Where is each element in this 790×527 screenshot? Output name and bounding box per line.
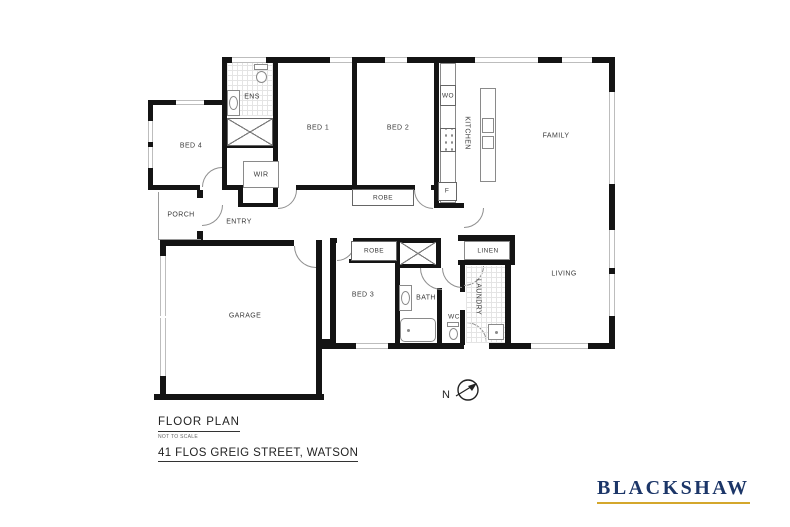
room-label-family: FAMILY — [543, 133, 570, 140]
wall-segment — [148, 100, 153, 190]
window-segment — [356, 343, 388, 349]
wall-segment — [222, 57, 615, 63]
blackshaw-logo: BLACKSHAW — [597, 477, 750, 504]
cooktop — [440, 128, 456, 152]
floor-plan-page: ENS BED 4 BED 1 BED 2 WO KITCHEN FAMILY … — [0, 0, 790, 527]
room-label-robe-bed12: ROBE — [373, 195, 393, 202]
appliance-label-fridge: F — [445, 188, 449, 195]
wall-segment — [162, 240, 294, 246]
room-label-bath: BATH — [416, 295, 436, 302]
window-segment — [148, 147, 153, 168]
robe-cupboard-crossed — [227, 118, 273, 146]
kitchen-island — [480, 88, 496, 182]
window-segment — [562, 57, 592, 63]
wall-segment — [148, 185, 200, 190]
plan-title: FLOOR PLAN — [158, 416, 240, 432]
room-label-wir: WIR — [254, 172, 269, 179]
wall-segment — [460, 310, 465, 345]
wall-segment — [352, 57, 357, 185]
title-block: FLOOR PLAN NOT TO SCALE 41 FLOS GREIG ST… — [158, 412, 358, 462]
door-arc-bed1 — [278, 190, 297, 209]
room-label-bed4: BED 4 — [180, 143, 202, 150]
compass: N — [440, 374, 486, 406]
wall-segment — [296, 185, 356, 190]
door-opening — [464, 343, 489, 349]
room-label-living: LIVING — [551, 271, 576, 278]
hall-cupboard-crossed — [400, 242, 436, 265]
wall-segment — [238, 203, 278, 207]
compass-arrowhead — [468, 383, 477, 391]
address-text: 41 FLOS GREIG STREET, WATSON — [158, 447, 358, 462]
window-segment — [609, 274, 615, 316]
compass-north-label: N — [442, 389, 450, 401]
window-segment — [609, 92, 615, 184]
room-label-entry: ENTRY — [226, 219, 252, 226]
door-arc-entry — [202, 205, 223, 226]
window-segment — [385, 57, 407, 63]
window-segment — [609, 230, 615, 268]
compass-circle — [458, 380, 478, 400]
bathtub-drain — [407, 329, 410, 332]
room-label-bed3: BED 3 — [352, 292, 374, 299]
room-label-robe-bed3: ROBE — [364, 248, 384, 255]
porch-edge-line — [158, 192, 159, 240]
appliance-label-wall-oven: WO — [442, 93, 454, 100]
wall-segment — [154, 394, 324, 400]
room-label-linen: LINEN — [477, 248, 498, 255]
bath-sink — [401, 291, 410, 305]
wall-segment — [160, 376, 166, 400]
door-arc-garage — [294, 246, 316, 268]
window-segment — [176, 100, 204, 105]
door-arc-wc — [442, 268, 462, 288]
scale-note: NOT TO SCALE — [158, 434, 358, 440]
room-label-ens: ENS — [244, 94, 260, 101]
island-sink — [482, 118, 494, 133]
wall-segment — [160, 240, 166, 256]
porch-edge-line — [158, 239, 201, 240]
window-segment — [330, 57, 353, 63]
room-label-laundry: LAUNDRY — [475, 279, 482, 315]
room-label-porch: PORCH — [167, 212, 194, 219]
wall-segment — [330, 238, 336, 349]
window-segment — [148, 121, 153, 142]
room-label-kitchen: KITCHEN — [464, 116, 471, 150]
wc-bowl — [449, 328, 458, 340]
wall-segment — [437, 288, 442, 345]
room-label-wc: WC — [448, 314, 460, 321]
door-arc-hall-family — [464, 208, 484, 228]
wall-segment — [316, 240, 322, 400]
wall-segment — [197, 190, 203, 198]
door-arc-bed2 — [414, 190, 433, 209]
room-label-garage: GARAGE — [229, 313, 261, 320]
laundry-tub-drain — [495, 331, 498, 334]
wall-segment — [330, 238, 337, 243]
room-label-bed2: BED 2 — [387, 125, 409, 132]
wall-segment — [434, 203, 464, 208]
island-sink — [482, 136, 494, 149]
room-label-bed1: BED 1 — [307, 125, 329, 132]
door-arc-bed4 — [202, 167, 222, 187]
window-segment — [475, 57, 538, 63]
door-arc-bath — [420, 268, 442, 290]
wall-segment — [505, 260, 511, 345]
ensuite-sink — [229, 96, 238, 110]
bathtub — [400, 318, 436, 342]
wc-cistern — [447, 322, 459, 327]
toilet-cistern — [254, 64, 268, 70]
window-segment — [160, 318, 166, 376]
window-segment — [160, 256, 166, 316]
window-segment — [531, 343, 588, 349]
toilet-bowl — [256, 71, 267, 83]
